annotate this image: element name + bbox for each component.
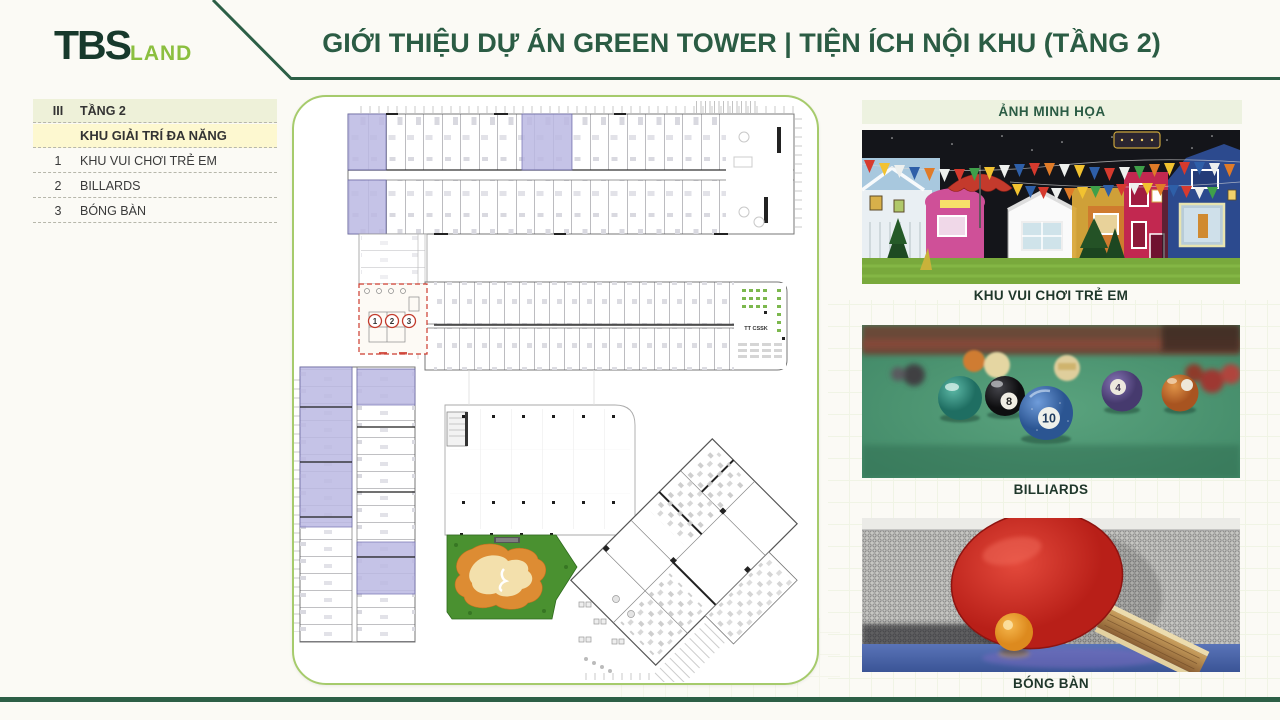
- ball-number-10: 10: [1042, 412, 1056, 426]
- row-label: BILLARDS: [80, 174, 273, 198]
- stool-row: [584, 657, 612, 673]
- marker-3: 3: [407, 317, 412, 326]
- floor-plan-figure: TT CSSK 1 2: [294, 97, 816, 682]
- row-number: 2: [43, 174, 73, 198]
- table-tennis-caption: BÓNG BÀN: [862, 676, 1240, 691]
- lawn-play-area: [447, 535, 577, 619]
- section-numeral: III: [43, 99, 73, 123]
- table-tennis-photo: [862, 518, 1240, 672]
- marker-1: 1: [373, 317, 378, 326]
- section-title: TẦNG 2: [80, 99, 273, 123]
- ball-number-4: 4: [1115, 383, 1121, 394]
- row-label: KHU VUI CHƠI TRẺ EM: [80, 149, 273, 173]
- playground-photo: [862, 130, 1240, 284]
- logo-text-primary: TBS: [54, 22, 130, 69]
- header: TBS LAND GIỚI THIỆU DỰ ÁN GREEN TOWER | …: [0, 0, 1280, 90]
- table-row: 2 BILLARDS: [33, 174, 277, 198]
- ball-number-8: 8: [1006, 396, 1012, 408]
- footer-bar: [0, 697, 1280, 702]
- plan-area-label: TT CSSK: [744, 326, 768, 332]
- row-number: 1: [43, 149, 73, 173]
- page-title: GIỚI THIỆU DỰ ÁN GREEN TOWER | TIỆN ÍCH …: [293, 28, 1190, 59]
- row-label: BÓNG BÀN: [80, 199, 273, 223]
- row-number: 3: [43, 199, 73, 223]
- gallery-header-bar: ẢNH MINH HỌA: [862, 100, 1242, 124]
- table-row: 3 BÓNG BÀN: [33, 199, 277, 223]
- floor-plan-panel: TT CSSK 1 2: [292, 95, 819, 685]
- table-row-group: KHU GIẢI TRÍ ĐA NĂNG: [33, 124, 277, 148]
- billiards-photo: 8 4 10: [862, 325, 1240, 478]
- logo-text-secondary: LAND: [130, 42, 192, 69]
- playground-caption: KHU VUI CHƠI TRẺ EM: [862, 288, 1240, 303]
- table-row: 1 KHU VUI CHƠI TRẺ EM: [33, 149, 277, 173]
- amenity-table: III TẦNG 2 KHU GIẢI TRÍ ĐA NĂNG 1 KHU VU…: [33, 99, 277, 223]
- group-title: KHU GIẢI TRÍ ĐA NĂNG: [80, 124, 273, 148]
- billiards-caption: BILLIARDS: [862, 482, 1240, 497]
- company-logo: TBS LAND: [54, 22, 192, 69]
- marker-2: 2: [390, 317, 395, 326]
- green-furniture: [741, 287, 767, 311]
- ping-pong-ball: [995, 613, 1033, 651]
- table-row-section: III TẦNG 2: [33, 99, 277, 123]
- amenity-markers: 1 2 3: [369, 315, 416, 328]
- slide: TBS LAND GIỚI THIỆU DỰ ÁN GREEN TOWER | …: [0, 0, 1280, 720]
